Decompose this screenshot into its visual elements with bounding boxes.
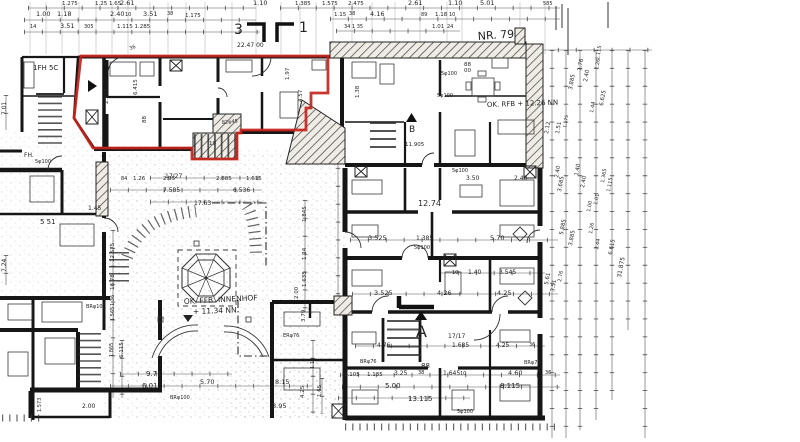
plan-label: 1.635	[302, 271, 308, 287]
plan-label: NR. 79	[477, 27, 514, 43]
plan-label: 1.40	[468, 269, 482, 276]
plan-label: BRφ100	[170, 395, 190, 401]
plan-label: 10	[449, 12, 455, 18]
plan-label: + 11.34 NN	[193, 305, 237, 316]
plan-label: 2.00	[82, 403, 96, 410]
plan-label: 5φ100	[437, 93, 453, 99]
plan-label: 3.50	[466, 175, 480, 182]
plan-label: 2.95	[163, 176, 176, 182]
plan-label: 1.275	[62, 1, 78, 7]
plan-label: 1.45	[88, 205, 102, 212]
plan-label: 1.15	[334, 12, 347, 18]
plan-label: 4.60	[508, 369, 522, 377]
plan-label: 2.475	[348, 1, 364, 7]
plan-label: 305	[84, 24, 94, 30]
plan-label: 1.385	[416, 235, 433, 242]
plan-label: 5.70	[200, 378, 214, 386]
plan-label: 17/17	[448, 333, 465, 340]
plan-label: 38	[418, 370, 424, 376]
plan-label: 1.115 1.285	[117, 24, 151, 30]
plan-label: 4.26	[437, 289, 451, 297]
plan-label: 2.40	[110, 10, 124, 18]
plan-label: 4.25	[496, 342, 510, 349]
plan-label: 24	[447, 24, 453, 30]
plan-label: 1.385	[295, 1, 311, 7]
plan-label: 4.25	[497, 289, 511, 297]
plan-label: 4.76	[377, 342, 391, 349]
plan-label: 5φ100	[441, 71, 457, 77]
plan-label: 5.01	[480, 0, 494, 7]
plan-label: 17.63	[194, 200, 211, 207]
plan-label: 3	[234, 22, 243, 38]
plan-label: 5φ100	[457, 409, 473, 415]
plan-label: 38	[167, 11, 173, 17]
plan-label: 1.615	[246, 176, 262, 182]
plan-label: 4.57	[298, 89, 304, 102]
plan-label: 1.18	[57, 10, 71, 18]
plan-label: BRφ76	[360, 359, 377, 365]
plan-label: 1.175	[185, 13, 201, 19]
plan-label: 5.00	[385, 382, 401, 390]
plan-label: 1.645	[443, 370, 460, 377]
plan-label: 3.25	[394, 370, 408, 377]
plan-label: 84	[121, 176, 127, 182]
plan-label: 6.01	[142, 382, 158, 390]
plan-label: 3.545	[499, 269, 516, 276]
plan-label: 1.565	[110, 307, 116, 321]
plan-label: 3.525	[368, 234, 387, 242]
plan-label: 1.97	[285, 67, 291, 80]
plan-label: 9.71	[146, 370, 162, 378]
plan-label: 1.845	[302, 206, 308, 222]
plan-label: 10	[452, 270, 458, 276]
plan-label: 1.65	[317, 384, 323, 397]
plan-label: 1.25 1.65	[95, 1, 122, 7]
plan-label: 5 51	[40, 218, 56, 226]
plan-label: 00	[464, 68, 471, 74]
plan-label: 38	[349, 11, 355, 17]
plan-label: 3.51	[60, 22, 74, 30]
plan-label: 5φ100	[414, 245, 430, 251]
plan-label: 89	[421, 12, 427, 18]
plan-label: 1.00	[36, 10, 50, 18]
plan-label: 1.865	[109, 343, 115, 357]
plan-label: 22.47 00	[237, 42, 264, 49]
plan-label: 7.01	[1, 101, 8, 115]
plan-label: ERφ76	[283, 333, 299, 339]
plan-label: 16.78	[110, 274, 116, 290]
plan-label: 5φ100	[452, 168, 468, 174]
plan-label: 8.115	[500, 382, 520, 390]
plan-label: BRφ70	[524, 360, 541, 366]
plan-label: 3.79	[301, 309, 307, 322]
plan-label: 88	[421, 362, 430, 370]
plan-label: 1.24	[302, 247, 308, 260]
plan-label: 6.415	[133, 79, 139, 95]
plan-label: 14	[30, 24, 36, 30]
plan-label: 8.15	[275, 378, 289, 386]
plan-label: 4.25	[300, 385, 306, 398]
plan-label: 2.61	[408, 0, 422, 7]
plan-label: 5.70	[490, 234, 504, 242]
plan-label: B	[409, 125, 415, 135]
plan-label: 2.61	[120, 0, 134, 7]
plan-label: 36	[529, 342, 535, 348]
plan-label: 36	[545, 370, 551, 376]
plan-label: 1.135	[367, 372, 383, 378]
plan-label: 13.115	[408, 395, 433, 403]
plan-label: 6.536	[233, 187, 250, 194]
plan-label: 10	[125, 12, 131, 18]
plan-label: 11.905	[405, 142, 425, 148]
plan-label: 1.36	[110, 295, 116, 306]
plan-label: 2.185	[104, 88, 110, 104]
floor-plan-canvas: 1.2751.25 1.652.611.101.001.182.40103.51…	[0, 0, 800, 442]
plan-label: 1.573	[37, 398, 43, 412]
plan-label: 1	[299, 20, 308, 36]
plan-label: 6.115	[119, 342, 125, 358]
plan-label: BRφ100	[86, 304, 106, 310]
plan-label: 2.00	[294, 286, 300, 299]
plan-label: 12.575	[110, 242, 116, 262]
plan-label: 1.14	[310, 358, 316, 369]
plan-label: 34 1 35	[344, 24, 363, 30]
plan-label: 19	[209, 141, 216, 147]
plan-label: 88	[142, 116, 148, 123]
plan-label: 5φ100	[35, 159, 51, 165]
plan-label: 1.26	[133, 176, 146, 182]
plan-label: 1.38	[355, 85, 361, 98]
plan-label: FH.	[24, 152, 34, 159]
plan-label: A	[416, 322, 427, 341]
plan-label: 585	[543, 1, 553, 7]
plan-label: 10	[460, 371, 466, 377]
plan-label: 1.685	[452, 342, 469, 349]
plan-label: 1.105	[344, 372, 360, 378]
plan-label: 2.885	[216, 176, 232, 182]
plan-label: 1FH 5C	[33, 64, 58, 72]
plan-label: 1.575	[322, 1, 338, 7]
plan-label: 2.40	[514, 175, 528, 182]
plan-label: 3.525	[374, 289, 393, 297]
plan-label: 8.95	[272, 402, 286, 410]
scanned-floor-plan-sheet: 1.2751.25 1.652.611.101.001.182.40103.51…	[0, 0, 800, 442]
plan-label: 1.10	[253, 0, 267, 7]
plan-label: 1.01	[432, 24, 444, 30]
plan-label: 12.74	[418, 199, 441, 208]
plan-label: 3.51	[143, 10, 157, 18]
plan-label: 7.585	[163, 187, 180, 194]
plan-label: 4.16	[370, 10, 384, 18]
plan-label: 1.10	[448, 0, 462, 7]
plan-label: 1.18	[435, 12, 448, 18]
plan-label: 7.24	[1, 258, 8, 272]
